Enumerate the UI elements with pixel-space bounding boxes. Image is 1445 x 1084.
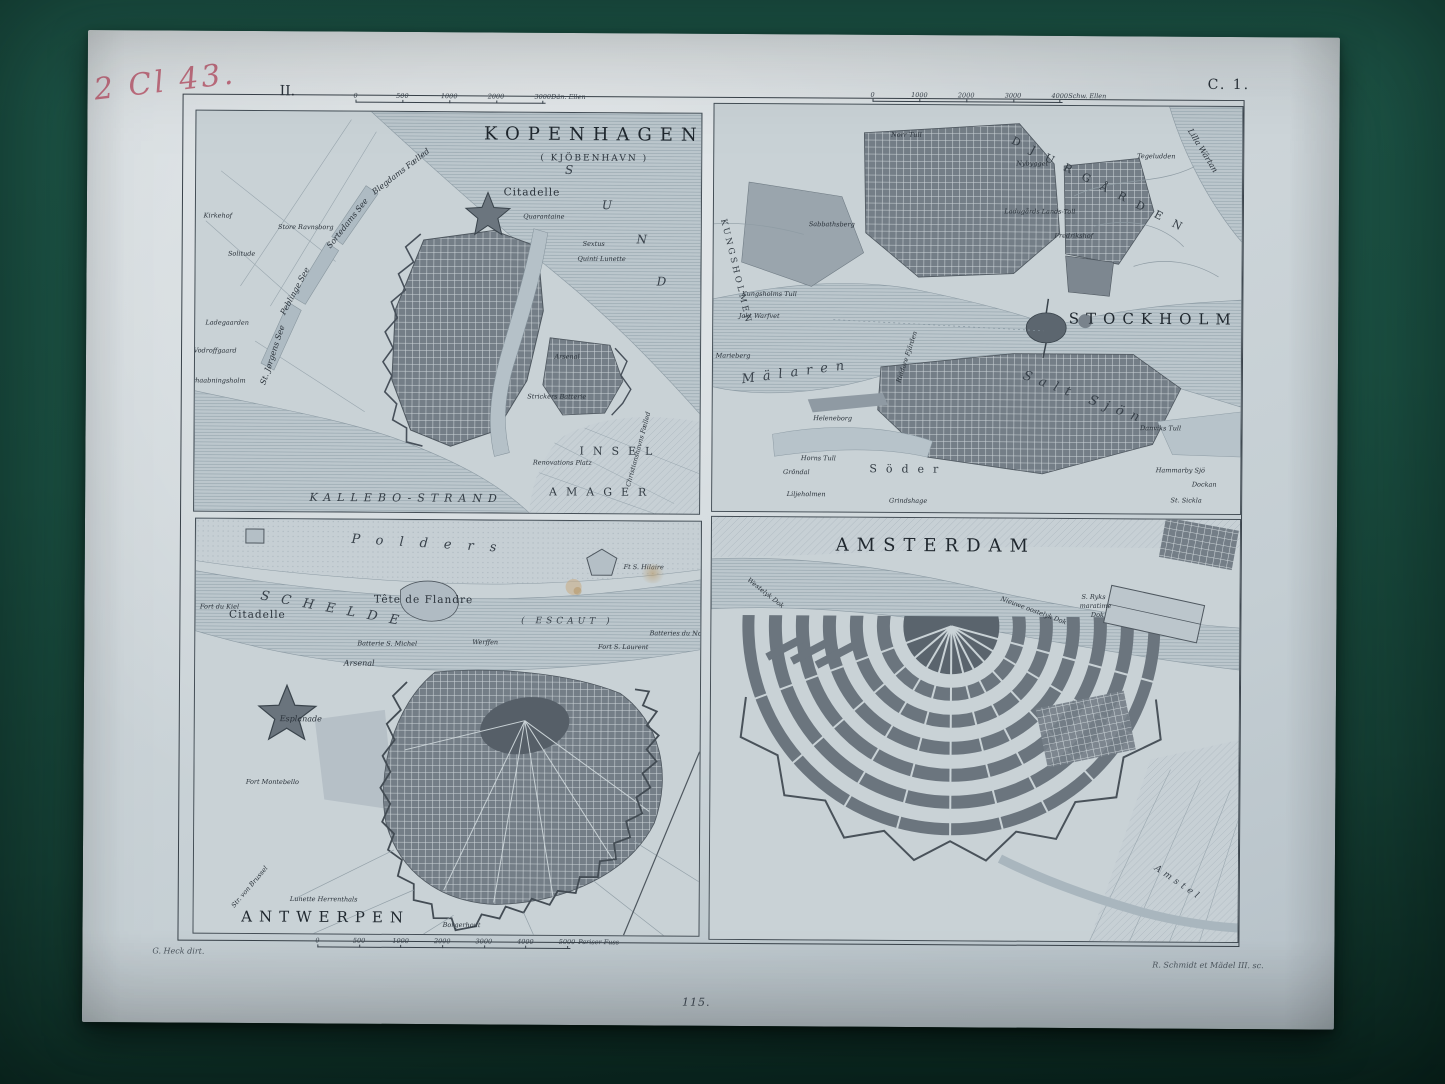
map-label: Quinti Lunette	[578, 256, 626, 263]
scalebar-tick-label: 1000	[441, 92, 458, 100]
scalebar-tick-label: 4000	[517, 938, 534, 946]
map-label: Grindshage	[889, 498, 927, 505]
map-label: Werffen	[472, 639, 498, 646]
map-label: Hammarby Sjö	[1156, 467, 1205, 474]
map-label: ( ESCAUT )	[521, 617, 614, 627]
map-label: Tête de Flandre	[374, 595, 473, 606]
map-label: Batterie S. Michel	[357, 640, 417, 647]
scalebar-tick-label: 0	[354, 92, 358, 100]
scalebar-kopenhagen: 0500100020003000Dän. Ellen	[356, 92, 596, 105]
scalebar-tick-label: 2000	[958, 91, 975, 99]
map-label: U	[602, 199, 614, 211]
scalebar-tick-label: 2000	[488, 92, 505, 100]
map-label: N	[636, 233, 649, 245]
map-panel-antwerpen: ANTWERPENPoldersSCHELDE( ESCAUT )Tête de…	[192, 518, 702, 937]
map-label: Store Ravnsborg	[278, 224, 333, 231]
map-label: AMAGER	[549, 486, 655, 498]
map-label: St. Sickla	[1170, 497, 1201, 504]
map-panel-amsterdam: AMSTERDAMWestelyk DokNieuwe oostelyk Dok…	[708, 516, 1241, 943]
scalebar-antwerpen: 050010002000300040005000Pariser Fuss	[317, 936, 637, 950]
map-label: Arsenal	[344, 660, 375, 668]
map-label: Kungsholms Tull	[742, 291, 797, 298]
plate-code: C. 1.	[1208, 77, 1251, 93]
scalebar-tick-label: 0	[871, 91, 875, 99]
map-label: Söder	[869, 463, 947, 474]
scalebar-unit-label: Dän. Ellen	[551, 93, 585, 101]
scalebar-tick-label: 0	[315, 936, 319, 944]
map-label: maratime	[1080, 603, 1112, 610]
credit-engraver-right: R. Schmidt et Mädel III. sc.	[1152, 961, 1263, 971]
scalebar-unit-label: Schw. Ellen	[1068, 92, 1106, 100]
map-label: Liljeholmen	[787, 491, 826, 498]
map-label: Borgerhout	[443, 922, 481, 929]
map-panel-kopenhagen: KOPENHAGEN( KJÖBENHAVN )SUNDCitadelleQua…	[193, 110, 702, 515]
credit-engraver-left: G. Heck dirt.	[152, 946, 204, 955]
scalebar-tick-label: 500	[353, 937, 365, 945]
map-label: Batteries du Nord	[650, 630, 702, 637]
map-engraving-antwerpen	[193, 519, 701, 936]
map-label: ANTWERPEN	[241, 909, 410, 925]
map-label: Strickers Batterie	[527, 393, 586, 400]
map-label: S. Ryks	[1081, 594, 1105, 601]
map-engraving-amsterdam	[709, 517, 1240, 942]
map-label: ( KJÖBENHAVN )	[540, 154, 648, 164]
map-label: Solitude	[228, 251, 255, 258]
scalebar-tick-label: 3000	[534, 93, 551, 101]
map-label: Citadelle	[229, 610, 286, 621]
scalebar-tick-label: 500	[396, 92, 408, 100]
plate-number: II.	[280, 83, 296, 99]
map-label: Heleneborg	[813, 415, 852, 422]
map-label: Kirkehof	[204, 212, 232, 219]
map-label: STOCKHOLM	[1069, 311, 1238, 327]
paper-sheet: 2 Cl 43. II. C. 1.	[82, 30, 1340, 1030]
map-label: Arsenal	[554, 354, 579, 361]
scalebar-line	[356, 102, 546, 104]
map-label: Gröndal	[783, 469, 810, 476]
scalebar-stockholm: 01000200030004000Schw. Ellen	[873, 91, 1113, 104]
map-label: Fredrikshof	[1054, 233, 1093, 240]
scalebar-line	[317, 946, 570, 949]
map-label: INSEL	[579, 446, 661, 457]
map-label: KOPENHAGEN	[484, 125, 703, 144]
map-engraving-stockholm	[712, 104, 1242, 514]
map-label: Ladegaarden	[205, 319, 248, 326]
map-label: Dockan	[1192, 482, 1217, 489]
map-label: Quarantaine	[523, 213, 564, 220]
map-label: Forhaabningsholm	[193, 377, 246, 384]
map-label: Horns Tull	[801, 455, 836, 462]
map-label: Tegeludden	[1137, 153, 1175, 160]
map-label: Lunette Herrenthals	[290, 896, 358, 903]
map-label: Jakt Warfvet	[739, 313, 780, 320]
map-label: Fort S. Laurent	[598, 644, 648, 651]
scalebar-tick-label: 5000	[559, 938, 576, 946]
map-label: Ft S. Hilaire	[624, 564, 664, 571]
scalebar-tick-label: 1000	[392, 937, 409, 945]
map-label: Citadelle	[504, 187, 561, 198]
plate-frame: KOPENHAGEN( KJÖBENHAVN )SUNDCitadelleQua…	[177, 94, 1244, 947]
map-label: Sabbathsberg	[809, 221, 855, 228]
scalebar-tick-label: 2000	[434, 937, 451, 945]
map-label: Vodroffgaard	[194, 347, 237, 354]
scalebar-unit-label: Pariser Fuss	[578, 938, 619, 946]
map-label: KALLEBO-STRAND	[309, 492, 502, 504]
map-label: S	[565, 164, 575, 176]
map-label: Dok	[1091, 612, 1104, 619]
map-label: Norr Tull	[891, 132, 922, 139]
scalebar-tick-label: 4000	[1052, 92, 1069, 100]
scalebar-tick-label: 3000	[476, 937, 493, 945]
map-label: Fort Montebello	[246, 779, 299, 786]
map-label: AMSTERDAM	[836, 537, 1036, 556]
map-label: Esplanade	[280, 715, 322, 723]
scalebar-tick-label: 1000	[911, 91, 928, 99]
scalebar-tick-label: 3000	[1005, 92, 1022, 100]
map-label: Renovations Platz	[533, 459, 592, 466]
map-label: Nybygget	[1016, 160, 1048, 167]
map-label: D	[657, 275, 669, 287]
scalebar-line	[873, 101, 1063, 103]
map-label: Marieberg	[716, 353, 751, 360]
map-panel-stockholm: STOCKHOLMDJURGÅRDENLilla WärtanTegeludde…	[711, 103, 1243, 515]
page-number: 115.	[682, 996, 711, 1009]
map-label: Ladugårds Lands-Toll	[1004, 208, 1075, 215]
map-label: Sextus	[583, 241, 605, 248]
map-label: Danviks Tull	[1140, 425, 1181, 432]
